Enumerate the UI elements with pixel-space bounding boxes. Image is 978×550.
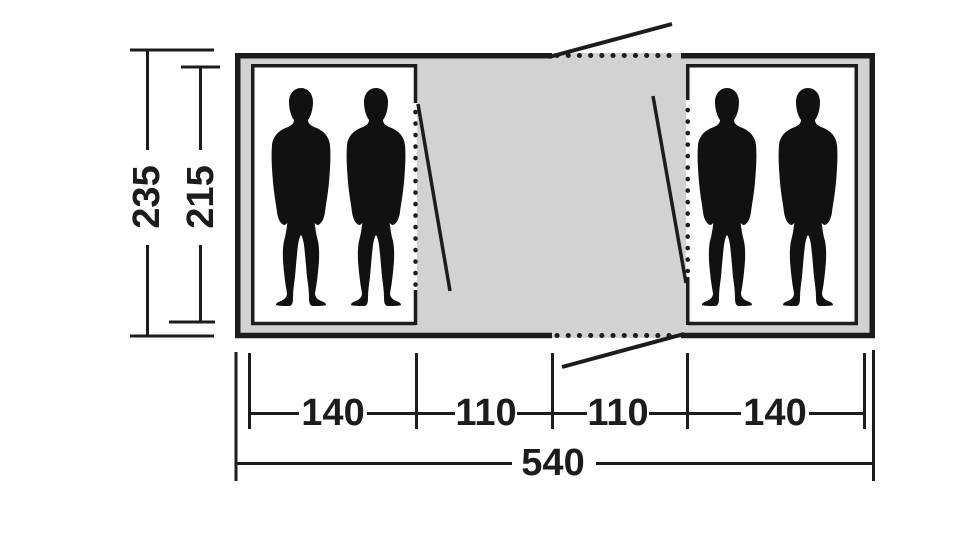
tent-floorplan-diagram: 235 215 140 110 110 140 540 [0,0,978,550]
height-dim-outer-label: 235 [126,165,168,228]
width-dim-label-3: 110 [587,392,648,434]
width-dim-label-2: 110 [455,392,516,434]
width-dim-label-4: 140 [743,392,806,434]
floorplan-canvas: 235 215 140 110 110 140 540 [0,0,978,550]
front-door-flap-line [549,24,672,57]
height-dim-inner-label: 215 [180,165,222,228]
total-width-label: 540 [521,442,584,484]
rear-door-flap-line [562,334,684,367]
width-dim-label-1: 140 [301,392,364,434]
